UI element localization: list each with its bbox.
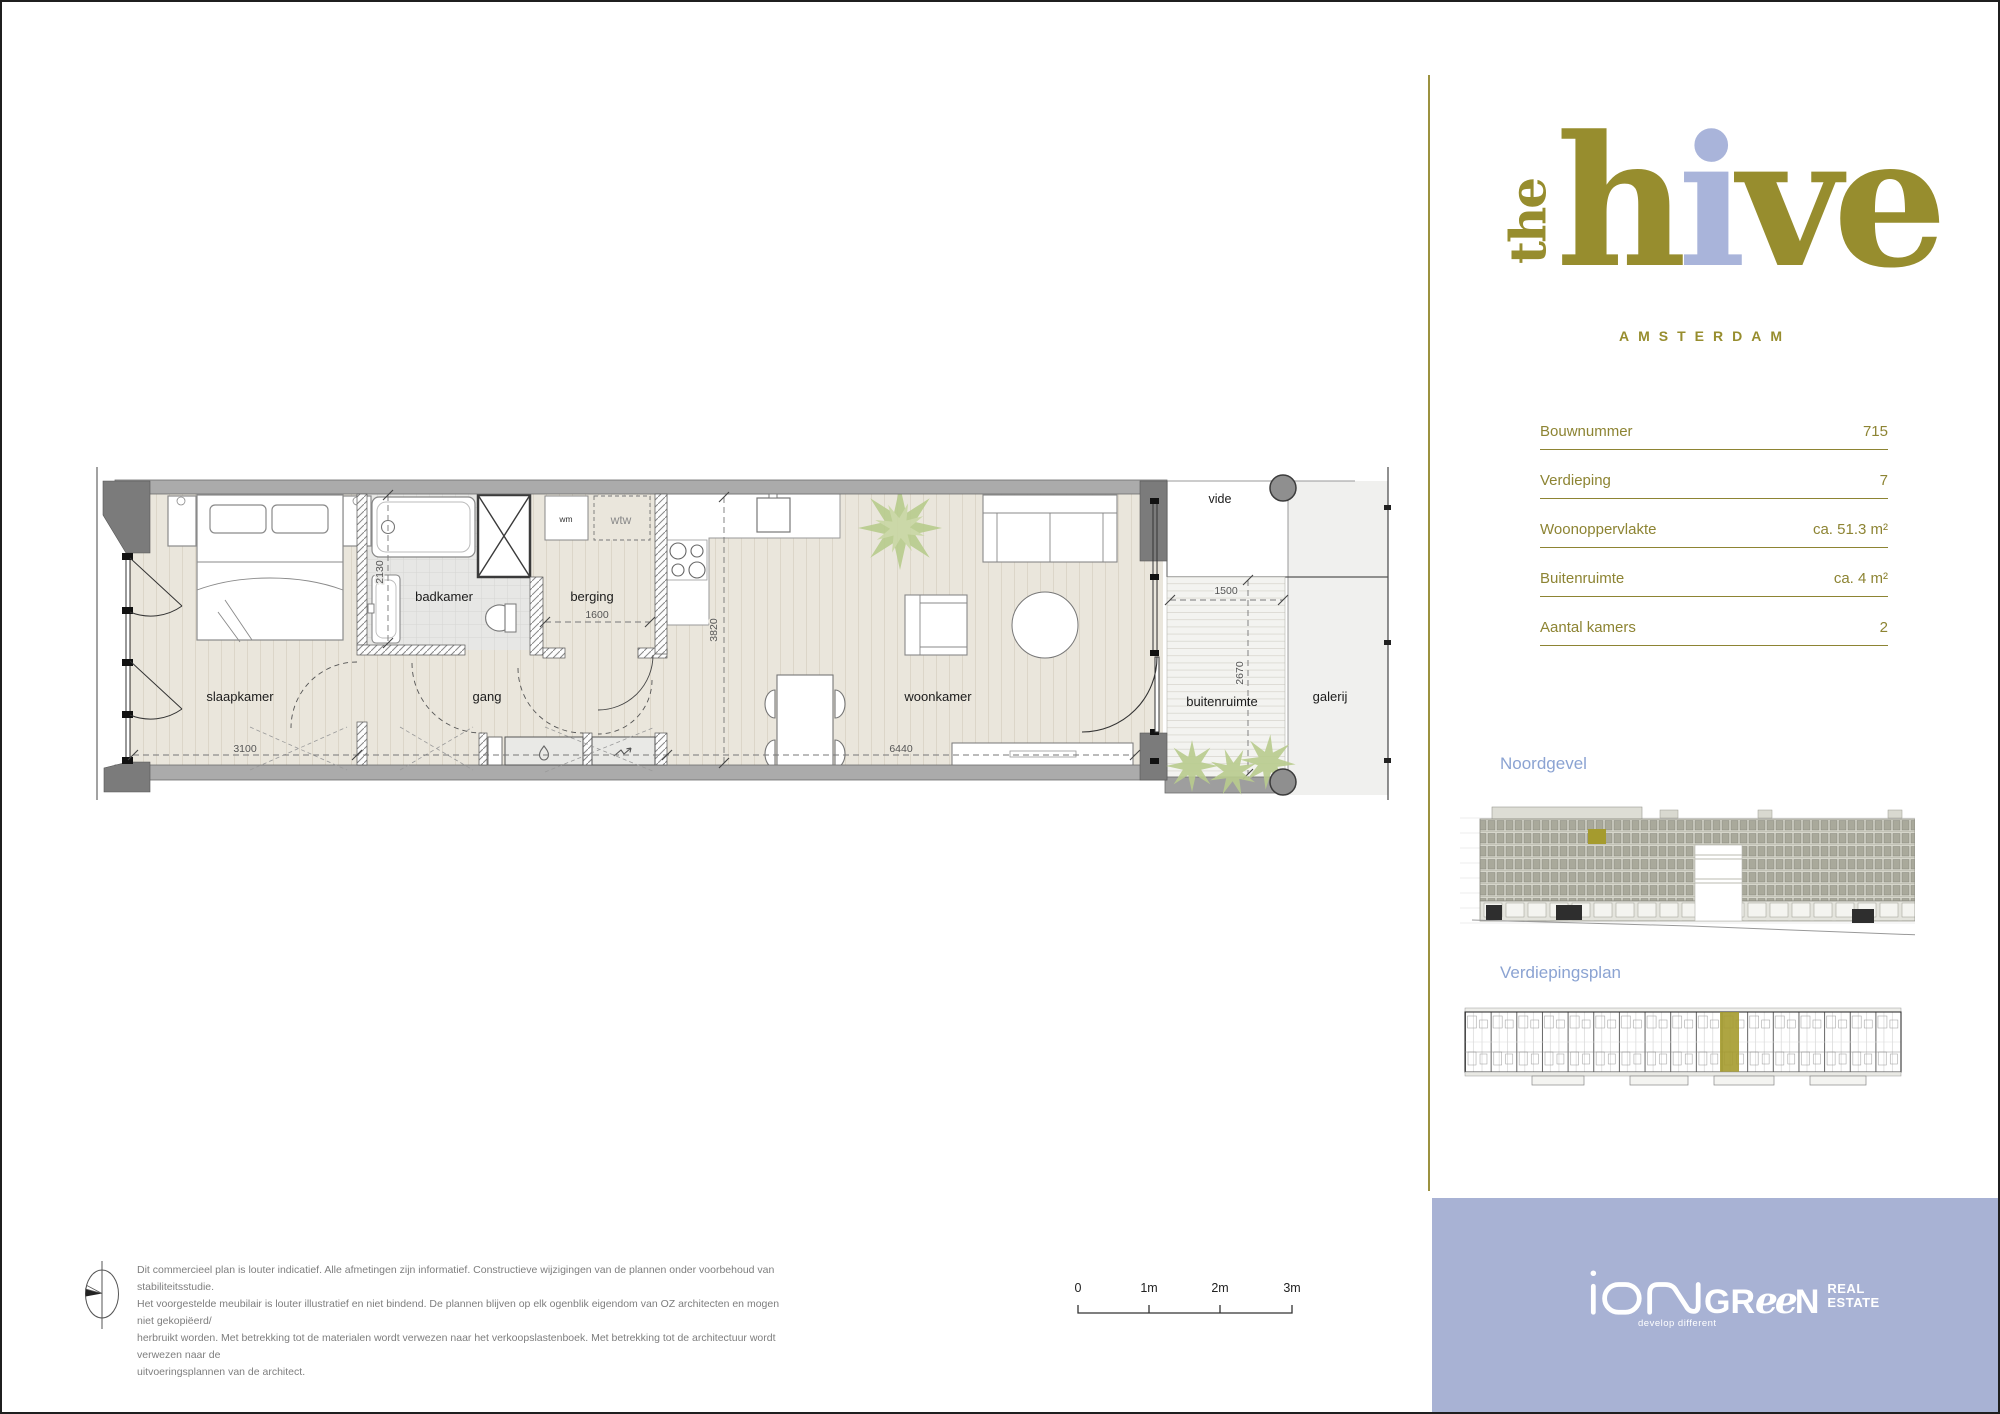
floor-overview-strip bbox=[1462, 1000, 1904, 1095]
hive-logo-the: the bbox=[1499, 157, 1558, 287]
hive-logo-city: AMSTERDAM bbox=[1470, 328, 1940, 344]
disclaimer-line: herbruikt worden. Met betrekking tot de … bbox=[137, 1330, 797, 1364]
detail-label: Verdieping bbox=[1540, 472, 1611, 489]
armchair bbox=[905, 595, 967, 655]
shaft bbox=[478, 495, 530, 577]
detail-row-woonoppervlakte: Woonoppervlakte ca. 51.3 m² bbox=[1540, 521, 1888, 548]
disclaimer-text: Dit commercieel plan is louter indicatie… bbox=[137, 1262, 797, 1381]
detail-value: 2 bbox=[1880, 619, 1888, 636]
section-title-verdiepingsplan: Verdiepingsplan bbox=[1500, 963, 1621, 983]
toilet bbox=[486, 604, 516, 632]
svg-text:2130: 2130 bbox=[374, 560, 386, 584]
bathtub bbox=[372, 497, 475, 557]
elevation-unit-highlight bbox=[1588, 829, 1606, 844]
plant bbox=[858, 486, 942, 570]
room-label-woonkamer: woonkamer bbox=[903, 689, 972, 704]
elevation-drawing bbox=[1460, 793, 1915, 945]
room-label-buitenruimte: buitenruimte bbox=[1186, 694, 1258, 709]
detail-label: Aantal kamers bbox=[1540, 619, 1636, 636]
dining-table bbox=[765, 675, 845, 772]
bathroom-sink bbox=[368, 575, 400, 643]
appliance-label-wm: wm bbox=[558, 514, 572, 524]
detail-row-buitenruimte: Buitenruimte ca. 4 m² bbox=[1540, 570, 1888, 597]
disclaimer-line: Dit commercieel plan is louter indicatie… bbox=[137, 1262, 797, 1296]
detail-value: ca. 4 m² bbox=[1834, 570, 1888, 587]
round-rug bbox=[1012, 592, 1078, 658]
svg-text:3820: 3820 bbox=[708, 618, 720, 642]
column bbox=[1270, 769, 1296, 795]
scale-tick-label: 0 bbox=[1075, 1281, 1082, 1295]
green-logo-gr: GR bbox=[1704, 1283, 1755, 1321]
detail-label: Bouwnummer bbox=[1540, 423, 1633, 440]
green-real-estate-logo: GReeNREALESTATE bbox=[1704, 1280, 1880, 1322]
svg-text:1500: 1500 bbox=[1214, 585, 1238, 597]
detail-row-verdieping: Verdieping 7 bbox=[1540, 472, 1888, 499]
scale-tick-label: 2m bbox=[1211, 1281, 1228, 1295]
green-logo-real: REAL bbox=[1827, 1281, 1864, 1296]
unit-details: Bouwnummer 715 Verdieping 7 Woonoppervla… bbox=[1540, 423, 1888, 668]
room-label-berging: berging bbox=[570, 589, 613, 604]
detail-value: ca. 51.3 m² bbox=[1813, 521, 1888, 538]
svg-text:1600: 1600 bbox=[585, 609, 609, 621]
detail-row-bouwnummer: Bouwnummer 715 bbox=[1540, 423, 1888, 450]
floor-plan: slaapkamer badkamer berging gang woonkam… bbox=[85, 460, 1405, 805]
detail-label: Buitenruimte bbox=[1540, 570, 1624, 587]
hive-logo-word: hive bbox=[1556, 113, 1938, 293]
sidebar-divider bbox=[1428, 75, 1430, 1191]
green-logo-n: N bbox=[1795, 1283, 1820, 1321]
detail-value: 7 bbox=[1880, 472, 1888, 489]
svg-text:3100: 3100 bbox=[233, 743, 257, 755]
green-logo-estate: ESTATE bbox=[1827, 1295, 1879, 1310]
disclaimer-line: uitvoeringsplannen van de architect. bbox=[137, 1364, 797, 1381]
north-compass-icon bbox=[68, 1258, 138, 1332]
detail-value: 715 bbox=[1863, 423, 1888, 440]
room-label-badkamer: badkamer bbox=[415, 589, 473, 604]
brand-footer: develop different GReeNREALESTATE bbox=[1432, 1198, 2000, 1414]
sofa bbox=[983, 495, 1117, 562]
green-logo-ee: ee bbox=[1755, 1280, 1795, 1322]
detail-label: Woonoppervlakte bbox=[1540, 521, 1656, 538]
plan-sheet: slaapkamer badkamer berging gang woonkam… bbox=[0, 0, 2000, 1414]
hob bbox=[667, 540, 707, 580]
room-label-gang: gang bbox=[473, 689, 502, 704]
appliance-label-wtw: wtw bbox=[610, 513, 632, 527]
svg-text:2670: 2670 bbox=[1234, 661, 1246, 685]
strip-unit-highlight bbox=[1720, 1012, 1739, 1072]
scale-tick-label: 1m bbox=[1140, 1281, 1157, 1295]
svg-text:6440: 6440 bbox=[889, 743, 913, 755]
detail-row-aantal-kamers: Aantal kamers 2 bbox=[1540, 619, 1888, 646]
column bbox=[1270, 475, 1296, 501]
room-label-vide: vide bbox=[1209, 492, 1232, 506]
room-label-slaapkamer: slaapkamer bbox=[206, 689, 274, 704]
bed bbox=[168, 495, 371, 642]
scale-tick-label: 3m bbox=[1283, 1281, 1300, 1295]
scale-bar: 0 1m 2m 3m bbox=[1060, 1270, 1310, 1325]
section-title-noordgevel: Noordgevel bbox=[1500, 754, 1587, 774]
hive-logo: the hive AMSTERDAM bbox=[1470, 100, 1940, 360]
galerij-area bbox=[1288, 467, 1391, 800]
room-label-galerij: galerij bbox=[1313, 689, 1348, 704]
disclaimer-line: Het voorgestelde meubilair is louter ill… bbox=[137, 1296, 797, 1330]
